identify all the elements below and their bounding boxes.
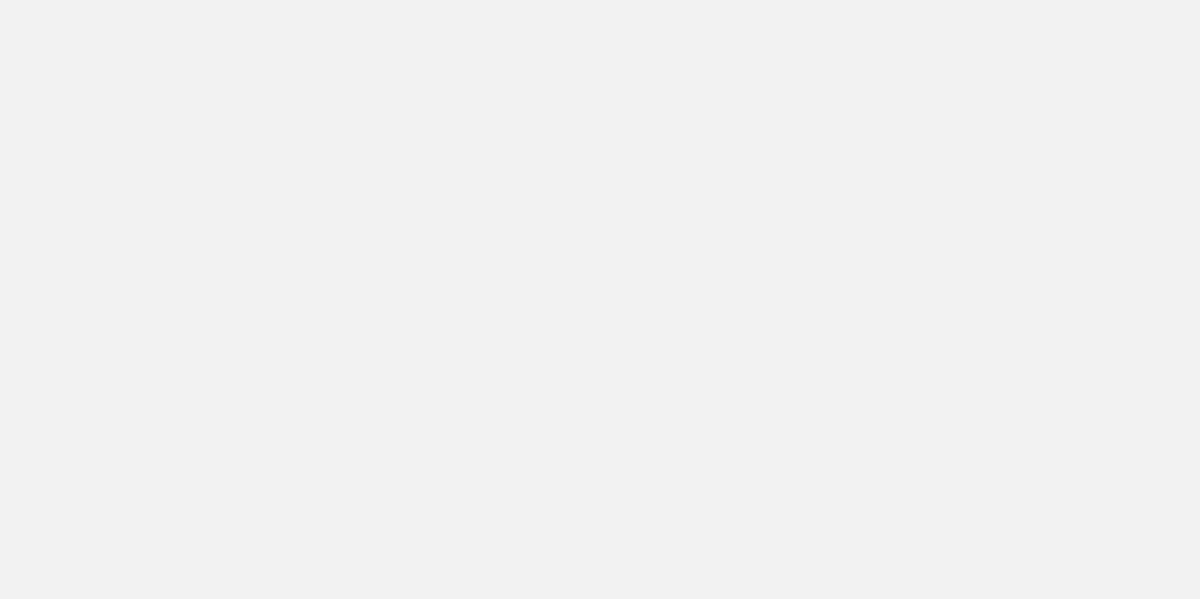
site-plan-canvas xyxy=(0,0,1200,599)
site-plan xyxy=(0,0,1200,599)
